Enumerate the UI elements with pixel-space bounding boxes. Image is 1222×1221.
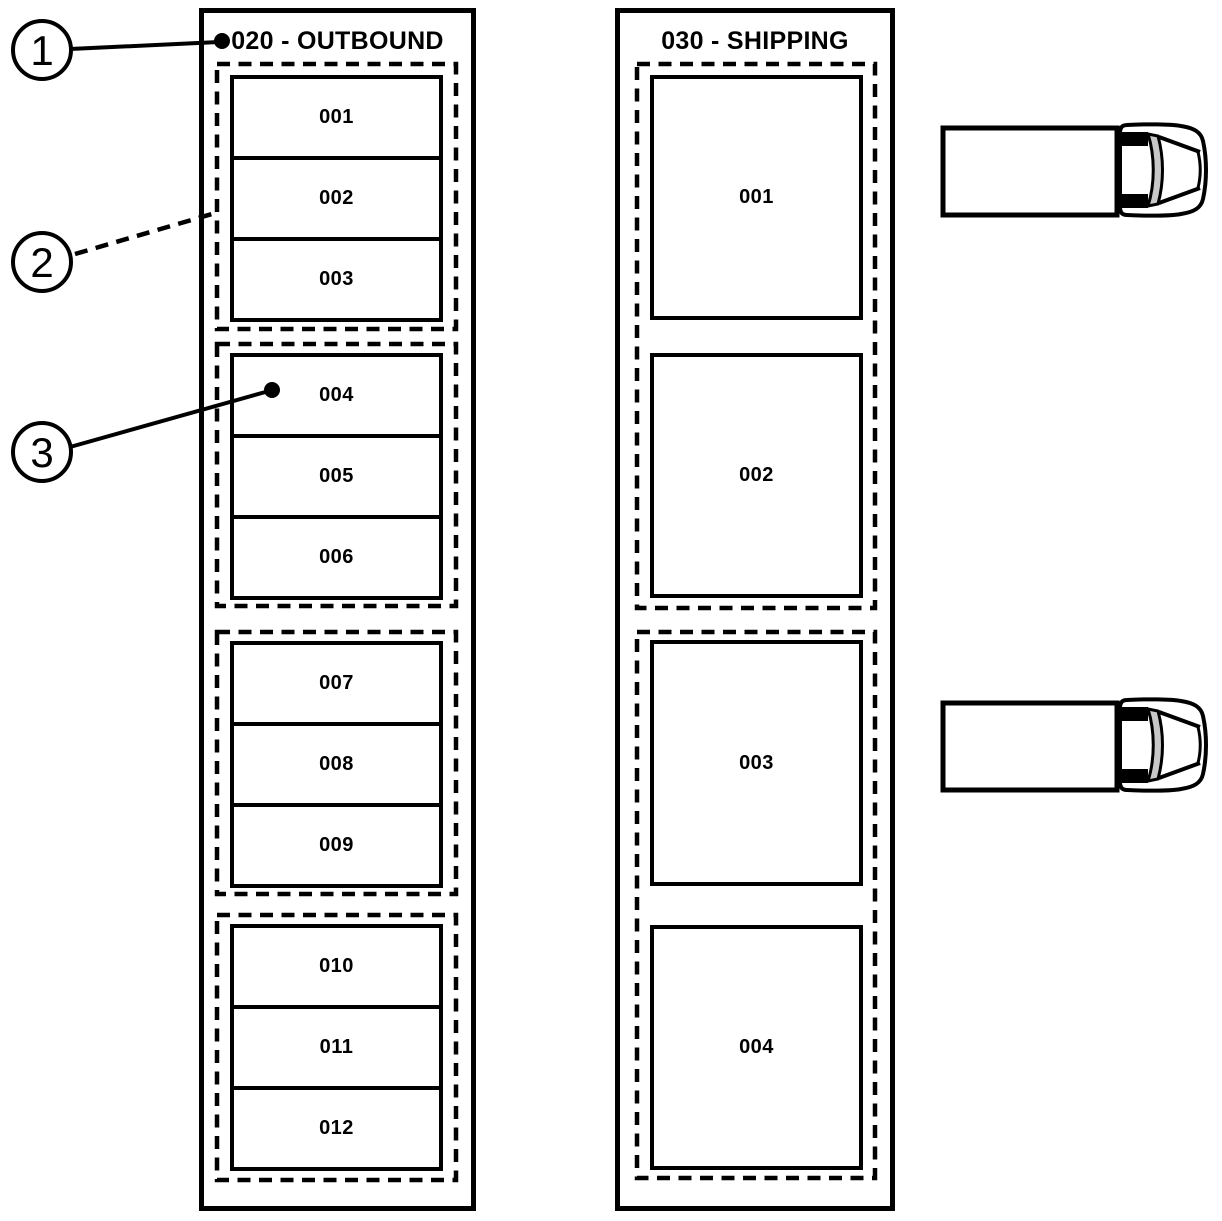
callout-1-leader-line (70, 42, 219, 49)
callout-2-label: 2 (30, 239, 53, 286)
callout-3-circle (13, 423, 71, 481)
warehouse-layout-diagram: 020 - OUTBOUND 001 002 003 004 005 006 0… (0, 0, 1222, 1221)
callout-1-label: 1 (30, 27, 53, 74)
slot-shipping-001: 001 (650, 75, 863, 320)
truck-icon-upper (943, 124, 1206, 215)
slot-outbound-008: 008 (230, 722, 443, 807)
slot-outbound-005: 005 (230, 434, 443, 519)
callout-1-circle (13, 21, 71, 79)
truck-icon-lower (943, 699, 1206, 790)
slot-shipping-002: 002 (650, 353, 863, 598)
slot-outbound-004: 004 (230, 353, 443, 438)
slot-shipping-004: 004 (650, 925, 863, 1170)
slot-outbound-011: 011 (230, 1005, 443, 1090)
zone-title-shipping: 030 - SHIPPING (615, 26, 895, 56)
slot-outbound-010: 010 (230, 924, 443, 1009)
slot-shipping-003: 003 (650, 640, 863, 886)
slot-outbound-001: 001 (230, 75, 443, 160)
diagram-overlay: 1 2 3 (0, 0, 1222, 1221)
slot-outbound-002: 002 (230, 156, 443, 241)
slot-outbound-009: 009 (230, 803, 443, 888)
callout-3-label: 3 (30, 429, 53, 476)
callout-2-leader-line (75, 214, 212, 254)
slot-outbound-007: 007 (230, 641, 443, 726)
slot-outbound-003: 003 (230, 237, 443, 322)
slot-outbound-012: 012 (230, 1086, 443, 1171)
zone-title-outbound: 020 - OUTBOUND (199, 26, 476, 56)
slot-outbound-006: 006 (230, 515, 443, 600)
callout-2-circle (13, 233, 71, 291)
